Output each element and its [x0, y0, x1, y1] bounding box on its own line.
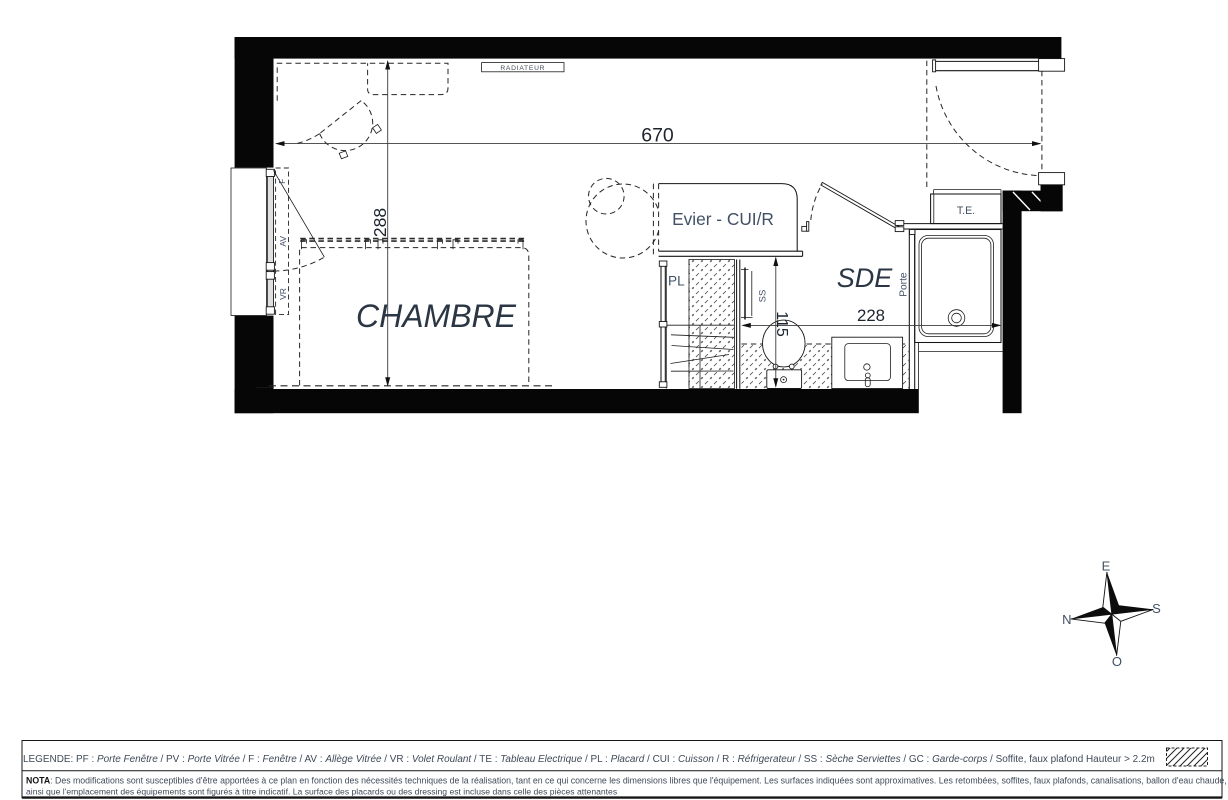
- svg-text:SS: SS: [758, 290, 769, 303]
- svg-text:Porte: Porte: [899, 272, 910, 297]
- svg-text:RADIATEUR: RADIATEUR: [500, 65, 545, 72]
- svg-text:O: O: [1112, 654, 1122, 669]
- svg-text:VR: VR: [278, 288, 288, 300]
- svg-text:SDE: SDE: [837, 263, 894, 293]
- svg-text:NOTA: Des modifications sont s: NOTA: Des modifications sont susceptible…: [26, 776, 1227, 786]
- svg-text:N: N: [1062, 612, 1071, 627]
- svg-text:115: 115: [773, 311, 790, 337]
- svg-text:E: E: [1102, 559, 1111, 574]
- svg-text:LEGENDE: PF : Porte Fenêtre /: LEGENDE: PF : Porte Fenêtre / PV : Porte…: [23, 754, 1155, 765]
- svg-text:670: 670: [641, 124, 674, 146]
- svg-text:AV: AV: [278, 236, 288, 247]
- svg-text:S: S: [1152, 601, 1161, 616]
- svg-text:ainsi que l'emplacement des éq: ainsi que l'emplacement des équipements …: [26, 787, 617, 797]
- svg-text:288: 288: [370, 208, 390, 237]
- svg-text:T.E.: T.E.: [957, 205, 975, 217]
- svg-text:F: F: [277, 179, 287, 184]
- svg-text:PL: PL: [668, 274, 685, 289]
- svg-text:228: 228: [857, 306, 885, 325]
- svg-text:CHAMBRE: CHAMBRE: [356, 298, 517, 334]
- svg-text:Evier - CUI/R: Evier - CUI/R: [672, 209, 774, 229]
